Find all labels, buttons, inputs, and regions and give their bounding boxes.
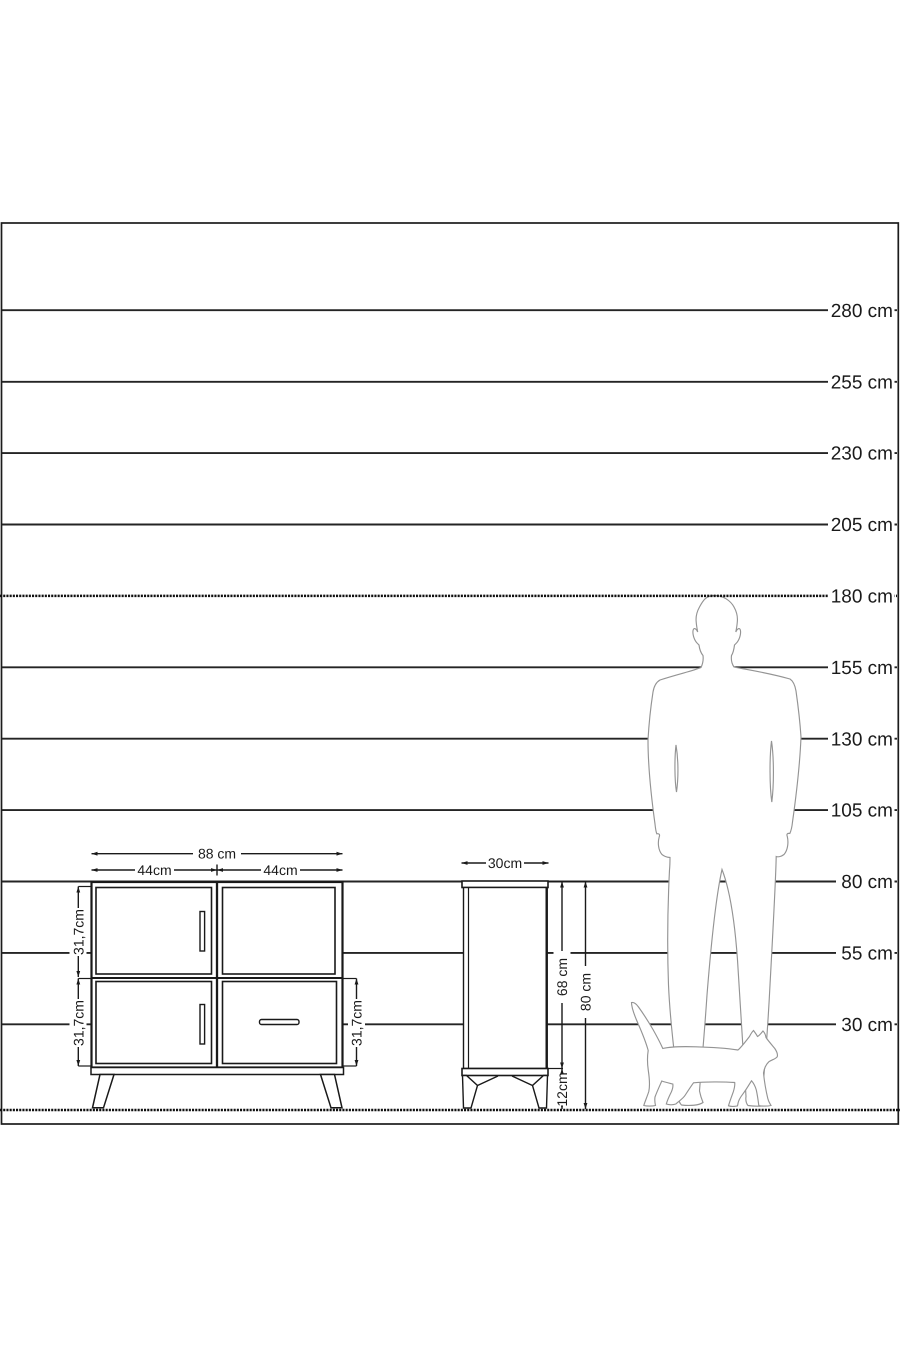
svg-text:12cm: 12cm <box>554 1072 570 1106</box>
svg-text:31,7cm: 31,7cm <box>349 1000 365 1046</box>
svg-text:31,7cm: 31,7cm <box>70 909 86 955</box>
svg-text:80 cm: 80 cm <box>841 872 893 893</box>
svg-text:280 cm: 280 cm <box>831 301 893 322</box>
svg-text:31,7cm: 31,7cm <box>70 1000 86 1046</box>
svg-text:105 cm: 105 cm <box>831 801 893 822</box>
svg-text:180 cm: 180 cm <box>831 587 893 608</box>
svg-text:205 cm: 205 cm <box>831 515 893 536</box>
svg-text:68 cm: 68 cm <box>554 958 570 996</box>
svg-text:44cm: 44cm <box>263 862 297 878</box>
svg-text:55 cm: 55 cm <box>841 944 893 965</box>
svg-text:255 cm: 255 cm <box>831 372 893 393</box>
svg-text:155 cm: 155 cm <box>831 658 893 679</box>
svg-text:30cm: 30cm <box>488 855 522 871</box>
svg-text:88 cm: 88 cm <box>198 846 236 862</box>
svg-text:80 cm: 80 cm <box>578 973 594 1011</box>
svg-text:30 cm: 30 cm <box>841 1015 893 1036</box>
svg-text:230 cm: 230 cm <box>831 444 893 465</box>
svg-text:44cm: 44cm <box>137 862 171 878</box>
svg-text:130 cm: 130 cm <box>831 729 893 750</box>
